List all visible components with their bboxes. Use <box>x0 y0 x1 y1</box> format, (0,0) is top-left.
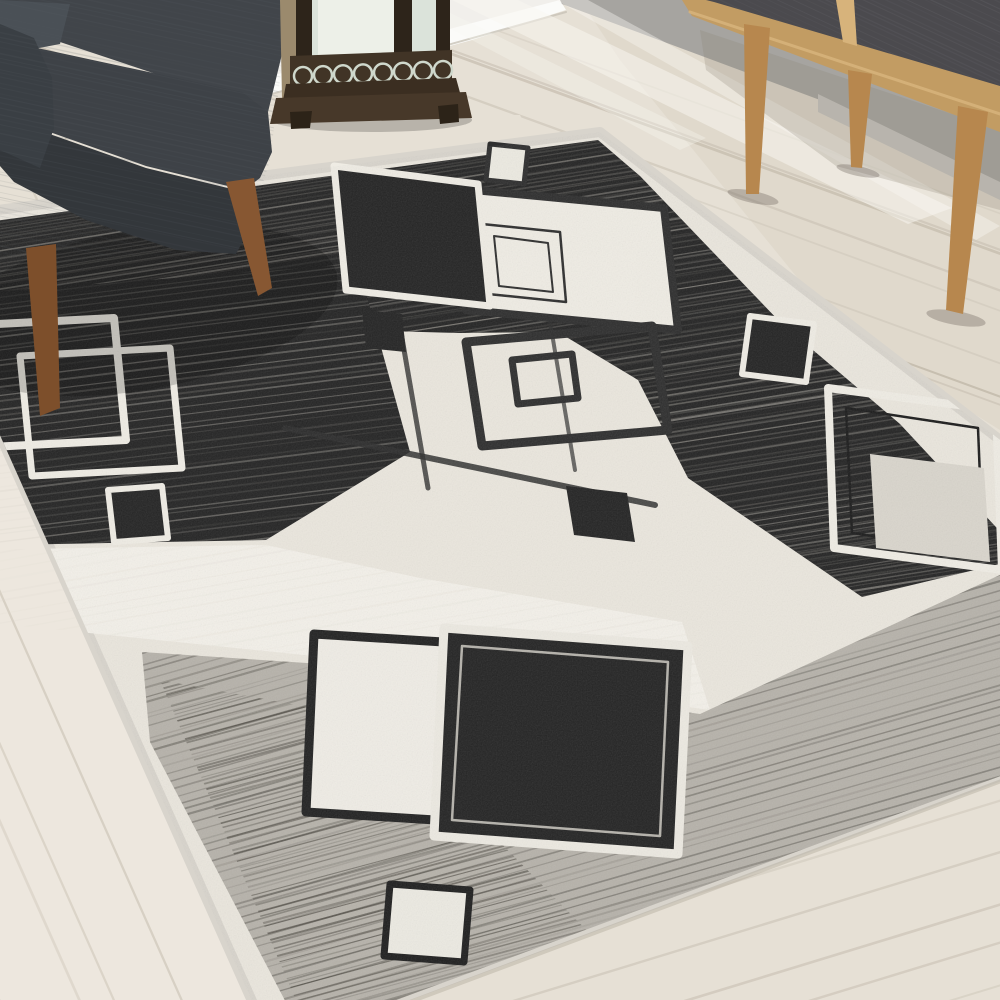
lantern-foot-right <box>438 104 459 124</box>
living-room-photo: Modern geometric black, gray and cream s… <box>0 0 1000 1000</box>
scene-svg <box>0 0 1000 1000</box>
lantern-foot-left <box>290 111 312 129</box>
